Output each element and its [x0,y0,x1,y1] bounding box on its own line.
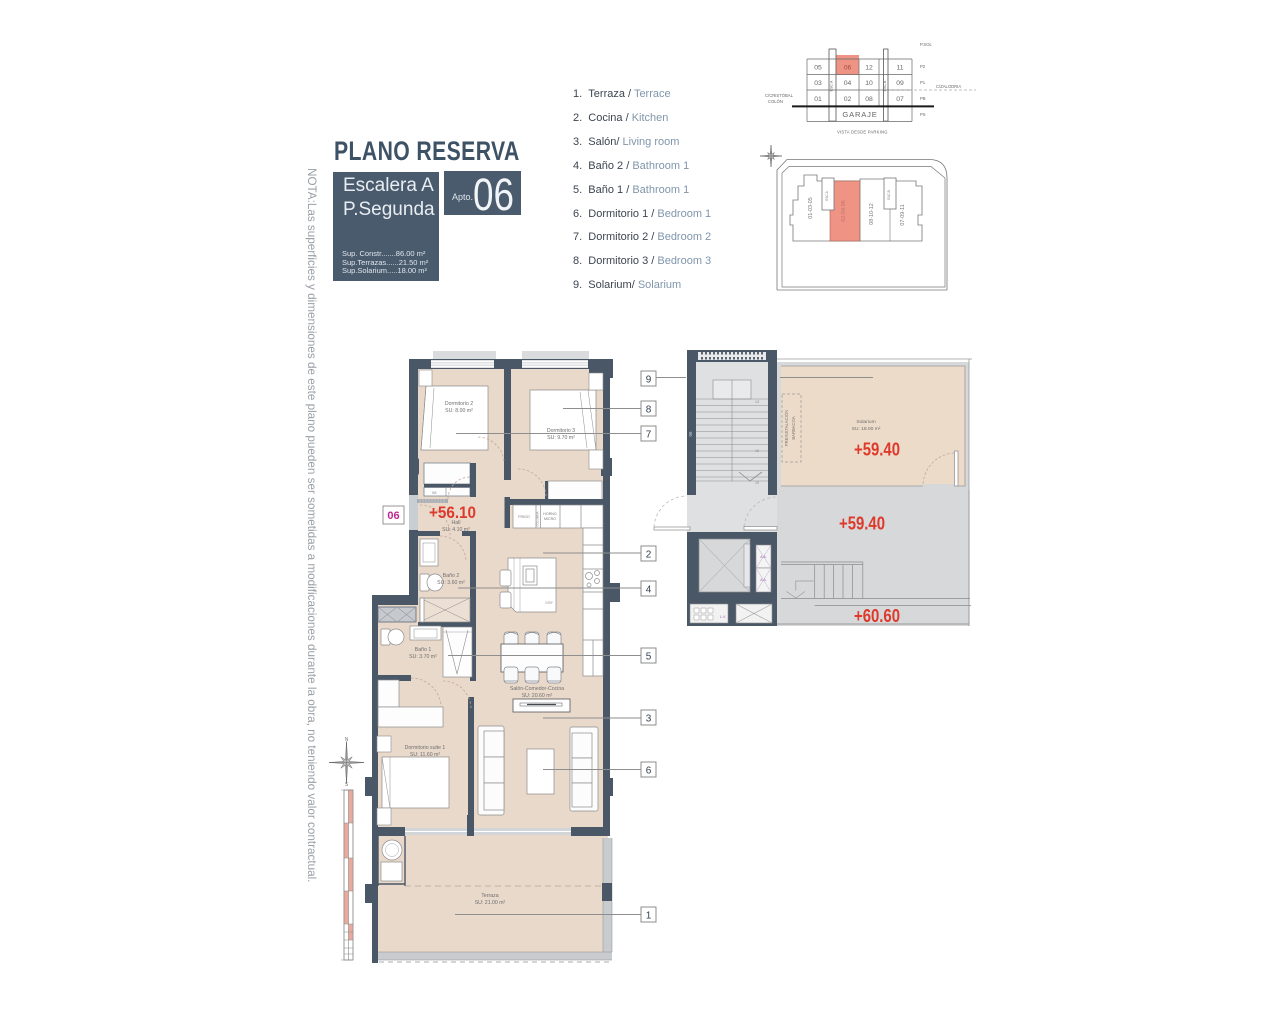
svg-text:C/CRISTÓBAL: C/CRISTÓBAL [765,93,794,98]
svg-text:COLUMNA: COLUMNA [536,511,540,526]
svg-text:13: 13 [755,400,759,404]
svg-text:PB: PB [920,96,926,101]
svg-text:6: 6 [646,766,652,777]
svg-text:08: 08 [865,96,873,103]
svg-text:Salón-Comedor-Cocina: Salón-Comedor-Cocina [510,686,564,692]
svg-text:12: 12 [865,65,873,72]
svg-text:+59.40: +59.40 [839,514,885,534]
svg-text:C/ZALODRIA: C/ZALODRIA [936,84,961,89]
svg-text:SU: 8.00 m²: SU: 8.00 m² [445,408,473,414]
svg-text:3: 3 [646,714,652,725]
svg-text:FRIGO: FRIGO [518,515,530,519]
svg-text:L.V.: L.V. [720,615,726,619]
svg-text:4: 4 [646,585,652,596]
svg-text:01: 01 [814,96,822,103]
svg-text:11: 11 [896,65,903,72]
svg-text:06: 06 [688,431,693,437]
svg-text:A.A.: A.A. [760,555,766,559]
svg-text:07-09-11: 07-09-11 [900,204,906,225]
svg-text:+56.10: +56.10 [429,504,476,522]
svg-text:02-04-06: 02-04-06 [841,200,847,222]
svg-text:ESC.B: ESC.B [883,80,887,91]
svg-text:P.SOL: P.SOL [920,42,932,47]
svg-text:A.A.: A.A. [760,578,766,582]
svg-text:9: 9 [646,375,652,386]
svg-text:5: 5 [646,652,652,663]
svg-text:Dormitorio suite 1: Dormitorio suite 1 [405,745,446,751]
svg-text:P2: P2 [920,64,926,69]
svg-text:09: 09 [896,80,904,87]
svg-text:1: 1 [646,911,652,922]
svg-text:SU: 18.00 m²: SU: 18.00 m² [852,426,881,432]
svg-text:06: 06 [387,510,399,522]
svg-text:ESC.A: ESC.A [825,190,829,200]
svg-text:ESC.B: ESC.B [887,190,891,200]
svg-text:08: 08 [432,490,437,495]
svg-text:2: 2 [646,550,652,561]
svg-text:Solarium: Solarium [856,419,875,425]
svg-text:SU: 3.60 m²: SU: 3.60 m² [437,580,465,586]
svg-text:PREINSTALACIÓN: PREINSTALACIÓN [784,410,789,446]
svg-text:03: 03 [814,80,822,87]
svg-text:BARBACOA: BARBACOA [791,416,796,439]
svg-text:SU: 4.10 m²: SU: 4.10 m² [442,527,470,533]
svg-text:8: 8 [646,405,652,416]
svg-text:GARAJE: GARAJE [842,110,877,119]
svg-text:7: 7 [646,430,652,441]
svg-text:08-10-12: 08-10-12 [869,203,875,225]
svg-text:07: 07 [896,96,904,103]
svg-text:SU: 20.60 m²: SU: 20.60 m² [522,693,553,699]
svg-text:19: 19 [755,481,759,485]
svg-text:+60.60: +60.60 [854,606,900,626]
svg-text:COLÓN: COLÓN [768,99,783,104]
svg-text:N: N [345,737,349,743]
svg-text:Dormitorio 2: Dormitorio 2 [445,401,473,407]
svg-text:MICRO: MICRO [544,517,556,521]
svg-text:SU: 11.60 m²: SU: 11.60 m² [410,752,440,758]
svg-text:S: S [345,782,349,788]
svg-text:GRIF: GRIF [545,601,553,605]
svg-text:SU: 9.70 m²: SU: 9.70 m² [547,435,575,441]
svg-text:Baño 1: Baño 1 [415,647,432,653]
svg-text:P1: P1 [920,80,926,85]
svg-text:ESC.A: ESC.A [830,80,834,91]
svg-text:+59.40: +59.40 [854,440,900,460]
svg-text:PS: PS [920,112,926,117]
svg-text:SU: 3.70 m²: SU: 3.70 m² [409,654,437,660]
svg-text:16: 16 [755,449,759,453]
svg-text:04: 04 [844,80,852,87]
svg-text:Terraza: Terraza [481,893,498,899]
svg-text:02: 02 [844,96,852,103]
svg-text:10: 10 [865,80,873,87]
svg-text:SU: 21.00 m²: SU: 21.00 m² [475,900,506,906]
svg-text:HORNO: HORNO [543,512,557,516]
svg-text:06: 06 [844,65,852,72]
svg-text:Baño 2: Baño 2 [443,573,460,579]
svg-text:05: 05 [814,65,822,72]
svg-text:VISTA DESDE PARKING: VISTA DESDE PARKING [837,130,888,135]
svg-text:01-03-05: 01-03-05 [808,197,814,219]
